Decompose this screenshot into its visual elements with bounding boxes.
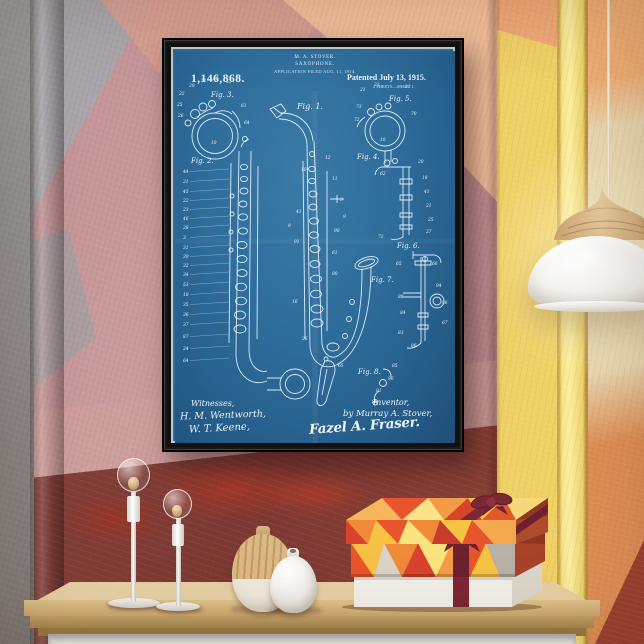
svg-text:34: 34 bbox=[183, 273, 189, 278]
fig1-label: Fig. 1. bbox=[296, 102, 323, 111]
svg-text:72: 72 bbox=[354, 118, 360, 123]
gift-boxes bbox=[340, 486, 555, 612]
fig2-label: Fig. 2. bbox=[190, 157, 214, 165]
room-scene: Fig. 3. Fig. 1. Fig. 5. Fig. 2. Fig. 4. … bbox=[0, 0, 644, 644]
svg-text:65: 65 bbox=[338, 364, 344, 369]
svg-text:24: 24 bbox=[182, 347, 189, 352]
svg-text:53: 53 bbox=[183, 283, 189, 288]
patent-inventor-header: M. A. STOVER. bbox=[175, 55, 455, 60]
poster-mat: Fig. 3. Fig. 1. Fig. 5. Fig. 2. Fig. 4. … bbox=[171, 47, 455, 443]
svg-text:37: 37 bbox=[183, 323, 189, 328]
svg-text:36: 36 bbox=[183, 313, 189, 318]
svg-text:28: 28 bbox=[182, 226, 189, 231]
table-cove-molding bbox=[30, 616, 594, 628]
fig4-drawing bbox=[375, 159, 412, 240]
saxophone-patent-drawing: Fig. 3. Fig. 1. Fig. 5. Fig. 2. Fig. 4. … bbox=[175, 51, 455, 443]
svg-text:10: 10 bbox=[211, 141, 217, 146]
wall-molding-strip bbox=[30, 0, 64, 644]
svg-text:11: 11 bbox=[332, 177, 338, 182]
svg-text:35: 35 bbox=[183, 303, 189, 308]
candlestick-left-sleeve bbox=[127, 496, 140, 522]
sheet-count-line: 2 SHEETS—SHEET 1. bbox=[373, 84, 415, 89]
poster-frame: Fig. 3. Fig. 1. Fig. 5. Fig. 2. Fig. 4. … bbox=[162, 38, 464, 452]
svg-text:64: 64 bbox=[183, 359, 189, 364]
svg-text:90: 90 bbox=[334, 229, 340, 234]
svg-text:61: 61 bbox=[241, 104, 247, 109]
svg-text:67: 67 bbox=[442, 321, 448, 326]
fig6-label: Fig. 6. bbox=[396, 242, 420, 250]
svg-text:3: 3 bbox=[183, 236, 186, 241]
fig1-drawing bbox=[270, 104, 380, 367]
svg-text:25: 25 bbox=[427, 218, 434, 223]
svg-text:87: 87 bbox=[183, 335, 189, 340]
svg-text:41: 41 bbox=[423, 190, 430, 195]
svg-text:10: 10 bbox=[301, 168, 307, 173]
white-vase-opening bbox=[290, 549, 296, 553]
svg-text:16: 16 bbox=[292, 300, 298, 305]
patented-date: Patented July 13, 1915. bbox=[347, 73, 426, 82]
candlestick-right-sleeve bbox=[172, 524, 184, 546]
svg-text:73: 73 bbox=[356, 105, 362, 110]
svg-text:22: 22 bbox=[178, 92, 185, 97]
svg-text:70: 70 bbox=[411, 112, 417, 117]
fig8-label: Fig. 8. bbox=[357, 368, 381, 376]
svg-text:80: 80 bbox=[332, 272, 338, 277]
svg-text:8: 8 bbox=[288, 224, 291, 229]
svg-text:27: 27 bbox=[425, 230, 432, 235]
svg-text:21: 21 bbox=[425, 204, 432, 209]
pendant-lamp-wood-canopy bbox=[554, 184, 644, 240]
inventor-label: Inventor, bbox=[373, 398, 409, 407]
svg-text:32: 32 bbox=[183, 264, 189, 269]
saxophone-line-art bbox=[175, 91, 455, 443]
svg-text:26: 26 bbox=[177, 114, 184, 119]
svg-text:85: 85 bbox=[392, 364, 398, 369]
svg-text:18: 18 bbox=[183, 293, 189, 298]
patent-title: SAXOPHONE. bbox=[175, 62, 455, 67]
svg-text:22: 22 bbox=[182, 199, 189, 204]
fig7-label: Fig. 7. bbox=[370, 276, 394, 284]
wall-red-patch bbox=[60, 492, 170, 547]
svg-text:41: 41 bbox=[295, 210, 302, 215]
candlestick-left-glass-globe bbox=[117, 458, 150, 492]
svg-text:88: 88 bbox=[398, 295, 404, 300]
svg-text:18: 18 bbox=[422, 176, 428, 181]
svg-text:66: 66 bbox=[432, 262, 438, 267]
svg-text:65: 65 bbox=[396, 262, 402, 267]
svg-text:20: 20 bbox=[417, 160, 424, 165]
witnesses-label: Witnesses, bbox=[191, 399, 234, 408]
svg-text:31: 31 bbox=[183, 246, 189, 251]
svg-text:3: 3 bbox=[340, 198, 343, 203]
svg-text:25: 25 bbox=[176, 103, 183, 108]
svg-text:81: 81 bbox=[376, 389, 382, 394]
blueprint-poster: Fig. 3. Fig. 1. Fig. 5. Fig. 2. Fig. 4. … bbox=[175, 51, 455, 443]
concrete-pillar bbox=[0, 0, 34, 644]
candlestick-right-glass-globe bbox=[163, 489, 192, 519]
svg-text:12: 12 bbox=[325, 156, 331, 161]
svg-text:94: 94 bbox=[436, 284, 442, 289]
fig4-label: Fig. 4. bbox=[356, 153, 380, 161]
fig2-drawing bbox=[229, 137, 310, 400]
svg-text:26: 26 bbox=[301, 337, 308, 342]
svg-text:45: 45 bbox=[182, 190, 189, 195]
svg-text:10: 10 bbox=[380, 138, 386, 143]
svg-text:21: 21 bbox=[359, 88, 366, 93]
cabinet-front bbox=[48, 634, 576, 644]
svg-text:61: 61 bbox=[332, 251, 338, 256]
svg-text:9: 9 bbox=[343, 215, 346, 220]
svg-text:72: 72 bbox=[378, 235, 384, 240]
fig5-label: Fig. 5. bbox=[388, 95, 412, 103]
svg-text:91: 91 bbox=[294, 240, 300, 245]
fig7-drawing bbox=[403, 257, 444, 348]
svg-text:84: 84 bbox=[400, 311, 406, 316]
svg-text:96: 96 bbox=[442, 301, 448, 306]
svg-text:46: 46 bbox=[182, 217, 189, 222]
gift-box-top bbox=[346, 498, 548, 544]
svg-text:64: 64 bbox=[244, 121, 250, 126]
fig3-drawing bbox=[185, 101, 240, 160]
svg-text:62: 62 bbox=[380, 172, 386, 177]
svg-text:21: 21 bbox=[182, 180, 189, 185]
pendant-lamp-cord bbox=[607, 0, 610, 196]
svg-text:83: 83 bbox=[398, 331, 404, 336]
patent-number: 1,146,868. bbox=[191, 73, 245, 85]
svg-text:23: 23 bbox=[182, 208, 189, 213]
svg-text:44: 44 bbox=[182, 170, 189, 175]
svg-text:86: 86 bbox=[411, 344, 417, 349]
fig3-label: Fig. 3. bbox=[210, 91, 234, 99]
svg-text:30: 30 bbox=[183, 255, 189, 260]
white-vase bbox=[270, 556, 317, 613]
svg-text:86: 86 bbox=[388, 377, 394, 382]
